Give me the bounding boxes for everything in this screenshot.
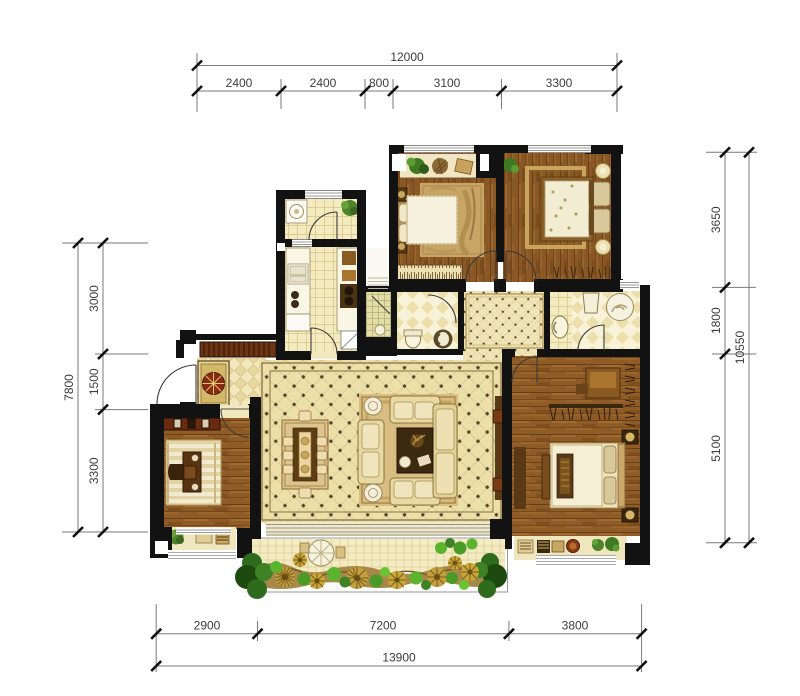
svg-text:3100: 3100 [434, 76, 461, 90]
svg-text:1500: 1500 [87, 368, 101, 395]
svg-text:10550: 10550 [733, 330, 747, 364]
svg-text:800: 800 [369, 76, 389, 90]
svg-text:7200: 7200 [370, 619, 397, 633]
svg-text:3000: 3000 [87, 285, 101, 312]
svg-text:2400: 2400 [310, 76, 337, 90]
svg-text:12000: 12000 [390, 50, 424, 64]
svg-text:5100: 5100 [709, 435, 723, 462]
svg-text:1800: 1800 [709, 307, 723, 334]
svg-text:2900: 2900 [194, 619, 221, 633]
svg-text:3650: 3650 [709, 206, 723, 233]
svg-text:3300: 3300 [87, 457, 101, 484]
svg-text:3800: 3800 [562, 619, 589, 633]
svg-text:3300: 3300 [546, 76, 573, 90]
svg-text:7800: 7800 [62, 374, 76, 401]
svg-text:13900: 13900 [382, 651, 416, 665]
svg-text:2400: 2400 [226, 76, 253, 90]
